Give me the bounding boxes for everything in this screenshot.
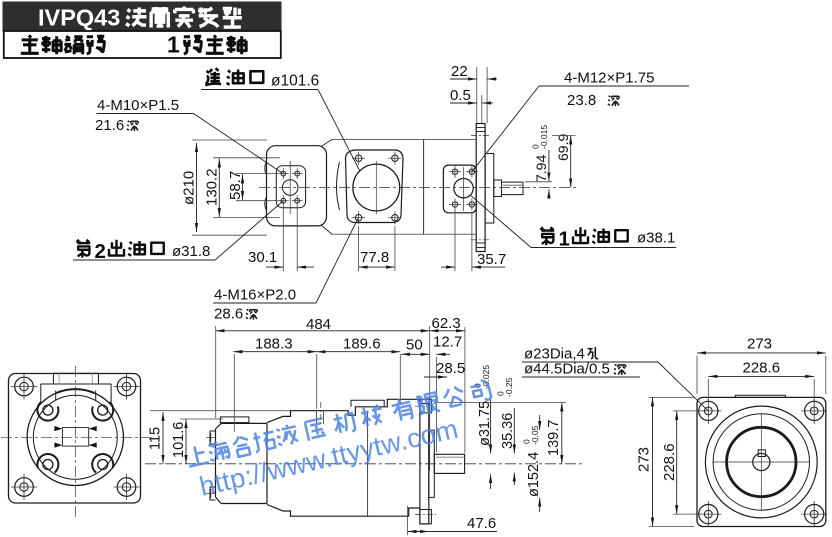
svg-text:101.6: 101.6 [171,422,187,458]
svg-text:12.7: 12.7 [433,334,462,351]
svg-text:21.6: 21.6 [95,117,124,134]
svg-text:77.8: 77.8 [360,249,389,266]
svg-text:ø210: ø210 [181,171,198,205]
svg-text:ø31.8: ø31.8 [172,243,210,260]
svg-text:0.5: 0.5 [450,87,471,104]
svg-text:ø38.1: ø38.1 [637,230,675,247]
svg-text:35.36: 35.36 [500,413,516,449]
svg-text:22: 22 [451,63,468,80]
svg-text:-0.05: -0.05 [530,425,540,445]
svg-text:35.7: 35.7 [477,251,506,268]
svg-text:-0.015: -0.015 [539,125,549,149]
svg-text:28.6: 28.6 [214,306,243,323]
svg-text:4-M10×P1.5: 4-M10×P1.5 [97,97,179,114]
svg-text:7.94: 7.94 [533,155,549,182]
svg-text:23.8: 23.8 [567,92,596,109]
svg-text:58.7: 58.7 [227,171,244,200]
svg-text:50: 50 [406,337,423,354]
svg-text:273: 273 [636,447,653,472]
svg-text:188.3: 188.3 [255,336,293,353]
svg-text:4-M12×P1.75: 4-M12×P1.75 [564,70,654,87]
svg-text:-0.25: -0.25 [504,377,514,397]
svg-text:1: 1 [167,32,180,58]
svg-text:ø44.5Dia/0.5: ø44.5Dia/0.5 [524,361,610,378]
svg-text:47.6: 47.6 [467,515,496,532]
svg-text:273: 273 [747,336,772,353]
svg-text:69.9: 69.9 [555,134,571,161]
svg-text:189.6: 189.6 [343,336,381,353]
svg-text:ø101.6: ø101.6 [271,73,319,90]
svg-text:228.6: 228.6 [743,360,781,377]
svg-text:30.1: 30.1 [248,249,277,266]
svg-text:139.7: 139.7 [546,420,562,456]
svg-text:130.2: 130.2 [204,168,221,206]
svg-text:4-M16×P2.0: 4-M16×P2.0 [214,287,296,304]
svg-text:IVPQ43: IVPQ43 [38,5,120,31]
svg-text:28.5: 28.5 [436,360,465,377]
svg-text:ø152.4: ø152.4 [526,452,542,497]
svg-text:115: 115 [148,427,164,450]
svg-text:62.3: 62.3 [432,315,461,332]
svg-text:228.6: 228.6 [661,443,678,481]
